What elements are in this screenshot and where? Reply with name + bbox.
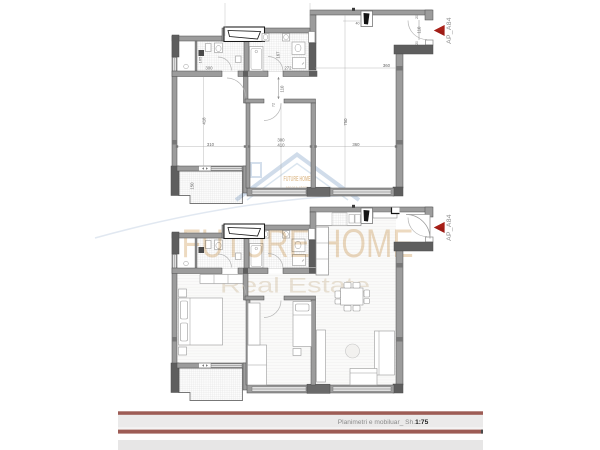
svg-text:20: 20 (415, 15, 419, 19)
svg-text:20: 20 (415, 41, 419, 45)
svg-text:418: 418 (202, 117, 207, 125)
svg-text:150: 150 (190, 182, 195, 190)
svg-text:AP_A84: AP_A84 (446, 17, 453, 44)
svg-text:AP_A84: AP_A84 (446, 214, 453, 241)
svg-text:167: 167 (276, 51, 281, 59)
svg-text:110: 110 (280, 85, 285, 92)
svg-text:410: 410 (277, 143, 285, 148)
svg-text:72: 72 (272, 103, 276, 107)
svg-text:300: 300 (205, 66, 213, 71)
svg-text:360: 360 (352, 142, 360, 147)
svg-text:310: 310 (207, 142, 215, 147)
svg-text:272: 272 (284, 66, 292, 71)
svg-text:Planimetri e mobiluar_ Sh.1:75: Planimetri e mobiluar_ Sh.1:75 (338, 419, 429, 426)
svg-text:40: 40 (356, 22, 360, 26)
svg-text:FUTURE HOME: FUTURE HOME (284, 174, 311, 183)
svg-text:110: 110 (417, 26, 422, 33)
svg-text:360: 360 (383, 63, 391, 68)
svg-text:750: 750 (343, 118, 348, 126)
svg-text:165: 165 (198, 56, 203, 63)
